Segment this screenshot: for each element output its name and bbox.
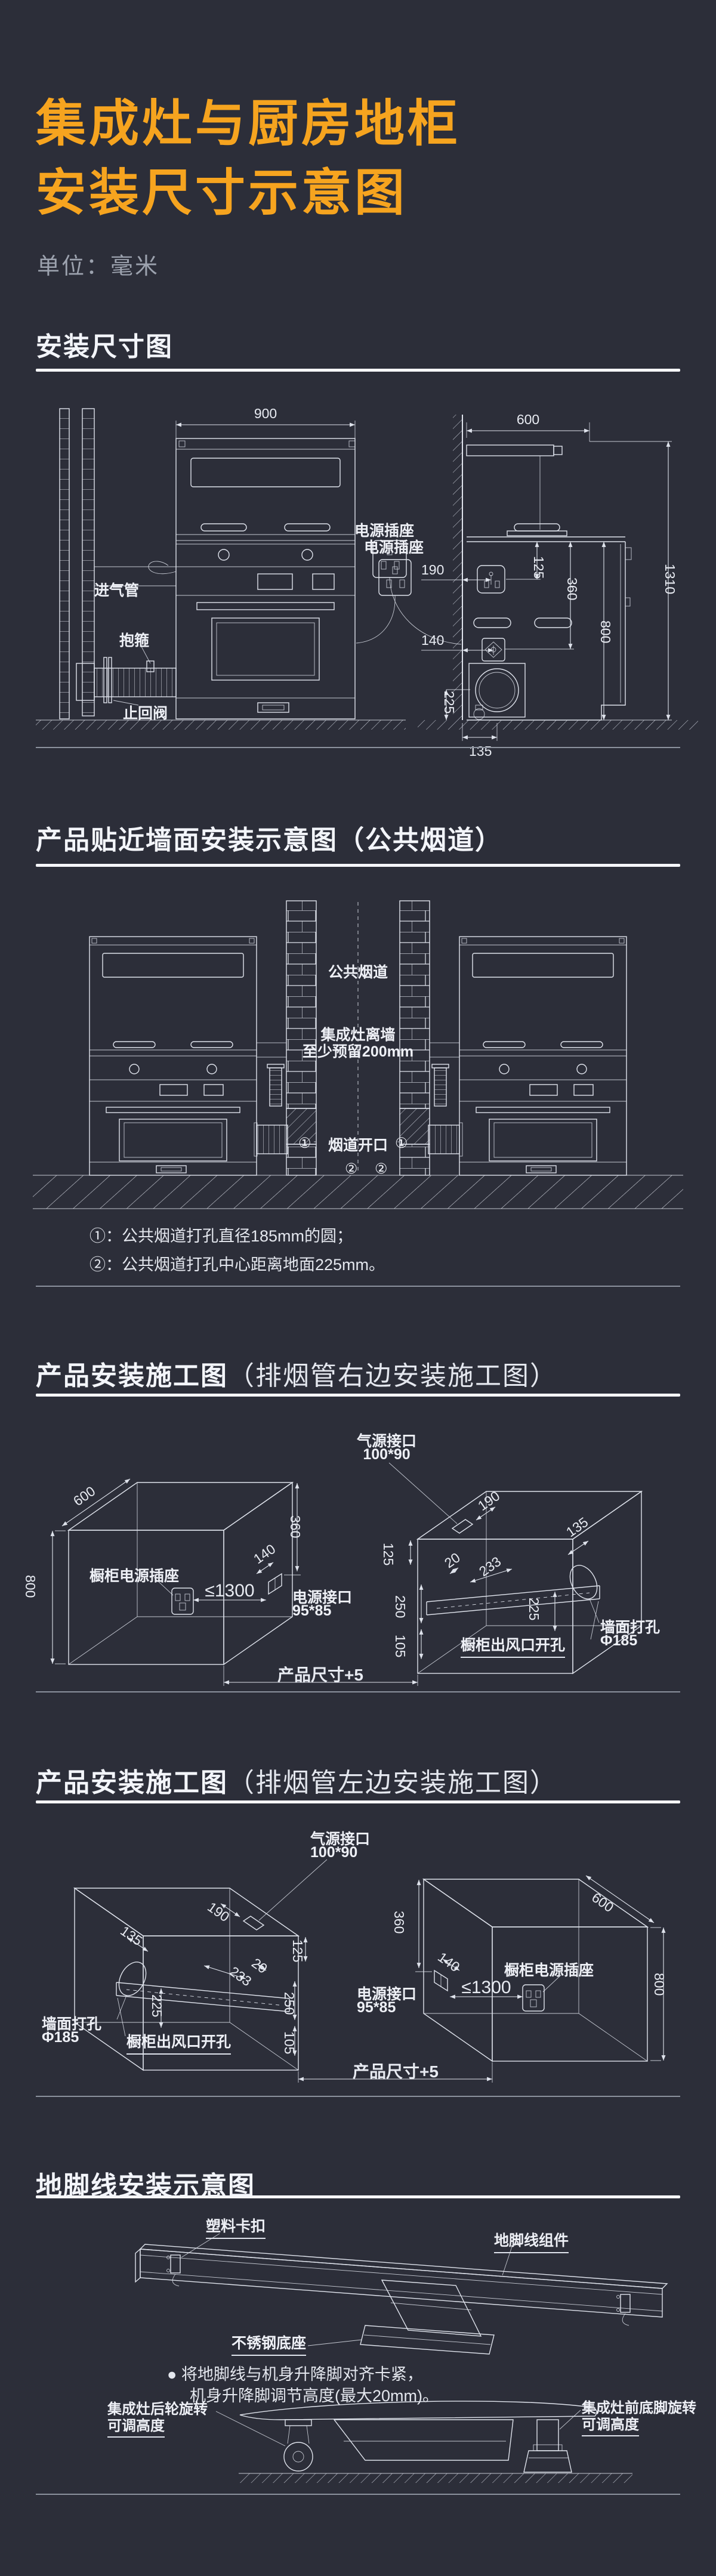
dim-105: 105 [281, 2031, 297, 2054]
marker-1-right: ① [395, 1135, 408, 1152]
dim-125: 125 [380, 1543, 396, 1565]
marker-2-right: ② [375, 1160, 388, 1178]
right-stove-drawing [459, 937, 626, 1175]
construction-drawing-left [0, 1823, 716, 2091]
product-size-label: 产品尺寸+5 [277, 1662, 363, 1686]
wall-hole-label-line2: Φ185 [600, 1632, 637, 1650]
gas-port-opening [452, 1519, 473, 1533]
section1-title: 安装尺寸图 [36, 325, 173, 363]
section-separator-2 [36, 1286, 680, 1287]
clamp-label: 抱箍 [119, 629, 149, 650]
marker-2-left: ② [345, 1160, 358, 1178]
dim-depth-600: 600 [517, 412, 539, 428]
cabinet-socket-label: 橱柜电源插座 [89, 1564, 179, 1586]
dim-800: 800 [651, 1973, 667, 1996]
front-view-drawing [36, 409, 411, 730]
marker-1-left: ① [298, 1135, 311, 1152]
dim-135: 135 [469, 743, 492, 759]
wall-hole-label-line2: Φ185 [42, 2029, 79, 2046]
section1-underline [36, 369, 680, 372]
gas-port-label-line2: 100*90 [363, 1446, 410, 1463]
section2-title: 产品贴近墙面安装示意图（公共烟道） [36, 818, 502, 857]
section4-title: 产品安装施工图（排烟管左边安装施工图） [36, 1761, 557, 1799]
power-port-label-line2: 95*85 [292, 1602, 331, 1620]
front-foot-label-line2: 可调高度 [582, 2413, 639, 2436]
vent-opening-label: 橱柜出风口开孔 [126, 2030, 231, 2055]
dim-1310: 1310 [662, 564, 678, 594]
dim-800: 800 [597, 620, 613, 643]
dim-800: 800 [22, 1575, 38, 1598]
section3-title: 产品安装施工图（排烟管右边安装施工图） [36, 1354, 557, 1392]
section4-title-main: 产品安装施工图 [36, 1768, 228, 1797]
section-construction-right-duct: 产品安装施工图（排烟管右边安装施工图） [0, 1342, 716, 1691]
vent-slot-opening [427, 1586, 600, 1615]
power-port-label-line2: 95*85 [357, 1999, 396, 2016]
dim-225: 225 [149, 1994, 165, 2017]
dim-1300: ≤1300 [205, 1581, 254, 1601]
dim-225: 225 [441, 691, 457, 714]
baseboard-note-text1: 将地脚线与机身升降脚对齐卡紧， [181, 2365, 423, 2383]
dim-360: 360 [287, 1515, 303, 1538]
baseboard-assembly-label: 地脚线组件 [494, 2229, 569, 2253]
section2-underline [36, 864, 680, 867]
wall-hatch [453, 415, 462, 720]
baseboard-bar [135, 2244, 667, 2354]
plastic-clip-label: 塑料卡扣 [206, 2214, 266, 2239]
dim-360: 360 [564, 577, 580, 600]
dim-190: 190 [421, 562, 444, 578]
bullet-icon: ● [167, 2365, 177, 2383]
wall-hole-opening [564, 1561, 602, 1604]
power-cable-front [356, 595, 395, 643]
dim-250: 250 [281, 1992, 297, 2015]
rear-wheel-label-line2: 可调高度 [107, 2414, 165, 2438]
front-foot-column [537, 2420, 558, 2451]
footnote-1: ①：公共烟道打孔直径185mm的圆； [89, 1223, 353, 1246]
plastic-clip-left [167, 2255, 181, 2286]
section4-title-sub: （排烟管左边安装施工图） [228, 1768, 557, 1797]
page-title-line2: 安装尺寸示意图 [36, 153, 408, 225]
gas-inlet-label: 进气管 [94, 579, 139, 600]
dim-360: 360 [391, 1911, 407, 1933]
cabinet-socket-label: 橱柜电源插座 [504, 1959, 594, 1980]
left-duct [257, 1125, 288, 1154]
machine-base-drawing [216, 2401, 632, 2483]
wall-gap-label-line2: 至少预留200mm [303, 1040, 413, 1061]
left-stove-drawing [89, 937, 257, 1175]
section-baseboard-install: 地脚线安装示意图 [0, 2154, 716, 2494]
dim-105: 105 [392, 1635, 408, 1657]
left-chimney [286, 901, 316, 1175]
section3-title-sub: （排烟管右边安装施工图） [228, 1361, 557, 1391]
section5-underline [36, 2195, 680, 2198]
dim-125: 125 [289, 1939, 305, 1962]
vent-opening-label: 橱柜出风口开孔 [461, 1633, 565, 1658]
vent-slot-1 [474, 618, 511, 628]
dim-width-900: 900 [254, 406, 277, 422]
installation-guide-page: 集成灶与厨房地柜 安装尺寸示意图 单位：毫米 安装尺寸图 [0, 0, 716, 2576]
plastic-clip-right [617, 2294, 631, 2325]
section-construction-left-duct: 产品安装施工图（排烟管左边安装施工图） 气源接口 100*90 190 125 … [0, 1748, 716, 2094]
gas-inlet-hose [149, 561, 176, 574]
power-socket-label-side: 电源插座 [354, 519, 414, 540]
caster-wheel [474, 709, 484, 719]
baseboard-drawing [0, 2207, 716, 2488]
floor-hatch-front [36, 720, 406, 730]
dim-140: 140 [421, 632, 444, 648]
dim-125: 125 [530, 556, 547, 579]
footnote-2: ②：公共烟道打孔中心距离地面225mm。 [89, 1252, 385, 1275]
section-separator-4 [36, 2096, 680, 2097]
rear-caster-wheel [284, 2442, 313, 2471]
product-size-label: 产品尺寸+5 [353, 2059, 439, 2083]
baseboard-note-line2: 机身升降脚调节高度(最大20mm)。 [190, 2383, 439, 2406]
right-duct [428, 1125, 459, 1154]
cabinet-socket-icon [172, 1588, 193, 1614]
dim-225: 225 [526, 1598, 542, 1620]
section3-title-main: 产品安装施工图 [36, 1361, 228, 1391]
vent-slot-2 [535, 618, 572, 628]
section-install-dimensions: 安装尺寸图 [0, 316, 716, 758]
floor-hatch [239, 2473, 632, 2483]
dim-250: 250 [392, 1595, 408, 1618]
baseboard-note-line1: ● 将地脚线与机身升降脚对齐卡紧， [167, 2361, 423, 2385]
section-separator-1 [36, 747, 680, 748]
dim-1300: ≤1300 [461, 1978, 511, 1998]
page-title-line1: 集成灶与厨房地柜 [36, 84, 461, 156]
section-separator-3 [36, 1691, 680, 1692]
gas-port-label-line2: 100*90 [310, 1844, 357, 1861]
section4-underline [36, 1800, 680, 1803]
install-dimension-drawing [0, 388, 716, 746]
section-wall-install-common-flue: 产品贴近墙面安装示意图（公共烟道） [0, 805, 716, 1283]
construction-drawing-right [0, 1426, 716, 1694]
right-chimney [400, 901, 430, 1175]
unit-note: 单位：毫米 [37, 248, 159, 280]
steel-base-label: 不锈钢底座 [232, 2331, 306, 2356]
floor-hatch [33, 1175, 683, 1209]
section3-underline [36, 1394, 680, 1397]
section-separator-5 [36, 2494, 680, 2495]
floor-hatch-side [418, 720, 698, 730]
front-foot-base [524, 2451, 572, 2472]
check-valve-label: 止回阀 [123, 702, 168, 723]
flue-opening-label: 烟道开口 [328, 1133, 388, 1155]
common-flue-label: 公共烟道 [328, 960, 388, 982]
